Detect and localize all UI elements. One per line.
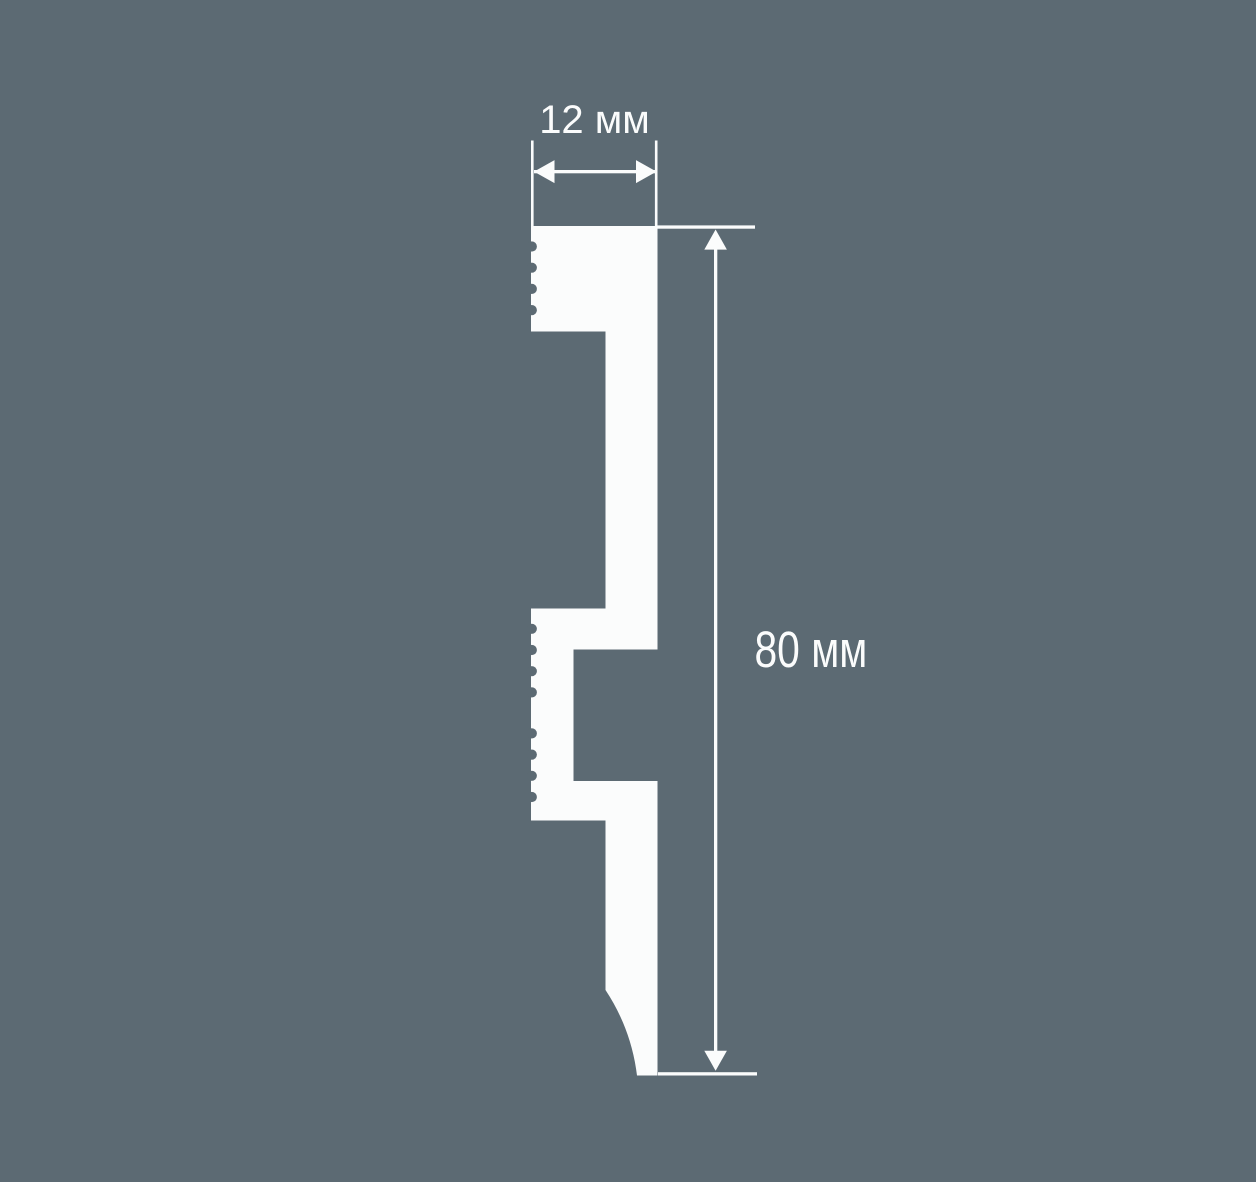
svg-text:80 мм: 80 мм	[755, 621, 868, 678]
svg-text:12 мм: 12 мм	[539, 98, 650, 142]
